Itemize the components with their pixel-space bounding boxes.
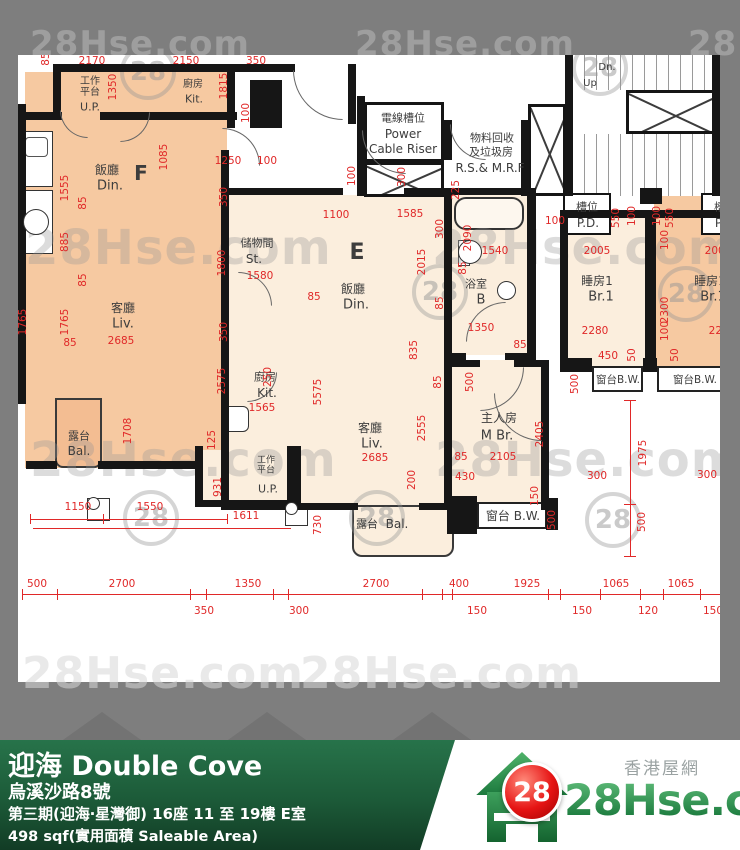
- dimension-label: 1565: [249, 403, 276, 414]
- dimension-label: 350: [194, 606, 214, 617]
- dimension-line: [103, 514, 104, 524]
- dimension-tick: [548, 589, 549, 600]
- dimension-tick: [190, 589, 191, 600]
- watermark-text: 28Hse.com: [300, 648, 582, 699]
- wall: [419, 503, 451, 510]
- dimension-tick: [57, 589, 58, 600]
- wall: [348, 64, 356, 124]
- room-label: 物料回收: [470, 133, 514, 144]
- brand-badge-icon: 28: [502, 762, 562, 822]
- room-label: 露台: [356, 519, 378, 530]
- dimension-label: 2005: [584, 246, 611, 257]
- dimension-label: 1350: [235, 579, 262, 590]
- dimension-label: 1708: [123, 418, 134, 445]
- dimension-label: 885: [60, 232, 71, 252]
- dimension-label: 100: [241, 103, 252, 123]
- room-label: 工作: [80, 77, 100, 87]
- room-label: Cable Riser: [369, 143, 437, 155]
- wall: [250, 80, 282, 128]
- room-label: Power: [385, 128, 421, 140]
- dimension-tick: [442, 589, 443, 600]
- dimension-label: 250: [263, 367, 274, 387]
- room-label: Liv.: [361, 438, 383, 451]
- watermark-badge: 28: [585, 492, 641, 548]
- dimension-tick: [600, 589, 601, 600]
- dimension-line: [30, 514, 31, 524]
- dimension-label: 120: [638, 606, 658, 617]
- room-label: Dn.: [598, 63, 615, 73]
- wall: [357, 96, 365, 196]
- dimension-label: 430: [455, 472, 475, 483]
- wall: [26, 461, 57, 469]
- room-label: Din.: [343, 299, 369, 312]
- watermark-text: 28Hse.com: [435, 432, 720, 488]
- dimension-label: 931: [213, 477, 224, 497]
- dimension-label: 150: [703, 606, 720, 617]
- dimension-label: 300: [697, 470, 717, 481]
- dimension-tick: [422, 589, 423, 600]
- dimension-label: 2015: [417, 249, 428, 276]
- house-door-icon: [506, 824, 537, 842]
- room-label: 及垃圾房: [469, 147, 513, 158]
- dimension-label: 450: [598, 351, 618, 362]
- room-label: 窗台B.W.: [596, 375, 640, 386]
- dimension-label: 730: [313, 515, 324, 535]
- dimension-label: 2685: [362, 453, 389, 464]
- room-label: 電線槽位: [381, 113, 425, 124]
- dimension-label: 85: [433, 375, 444, 388]
- room-label: 窗台B.W.: [673, 375, 717, 386]
- dimension-label: 5575: [313, 379, 324, 406]
- dimension-line: [30, 519, 228, 520]
- dimension-label: 1765: [18, 309, 28, 336]
- footer-white-wedge: 28 香港屋網 28Hse.com: [418, 740, 740, 850]
- dimension-label: 100: [545, 216, 565, 227]
- dimension-label: 300: [397, 167, 408, 187]
- dimension-label: 225: [451, 180, 462, 200]
- wall: [195, 500, 290, 507]
- dimension-tick: [273, 589, 274, 600]
- dimension-label: 400: [449, 579, 469, 590]
- dimension-label: 100: [660, 230, 671, 250]
- room-label: Br.1: [588, 291, 613, 304]
- dimension-line: [624, 400, 636, 401]
- room-label: 飯廳: [95, 164, 119, 176]
- dimension-tick: [700, 589, 701, 600]
- room-label: E: [349, 242, 364, 264]
- fixture-circle: [497, 281, 516, 300]
- wall: [444, 353, 466, 360]
- dimension-line: [624, 504, 636, 505]
- room-label: 儲物間: [241, 238, 274, 249]
- dimension-label: 150: [530, 486, 541, 506]
- stairs-lower: [572, 134, 712, 196]
- room-label: 槽位: [576, 202, 598, 213]
- dimension-label: 100: [627, 206, 638, 226]
- fixture-inner-1: [25, 137, 48, 157]
- dimension-label: 85: [435, 296, 446, 309]
- dimension-tick: [560, 589, 561, 600]
- wall: [98, 461, 198, 469]
- dimension-label: 1800: [217, 250, 228, 277]
- wall: [560, 358, 592, 372]
- dimension-tick: [452, 589, 453, 600]
- dimension-label: 85: [458, 261, 469, 274]
- fixture-circle: [285, 502, 298, 515]
- dimension-label: 50: [627, 348, 638, 361]
- room-label: U.P.: [258, 484, 278, 495]
- room-label: Up: [583, 79, 597, 89]
- dimension-label: 1765: [60, 309, 71, 336]
- room-label: 主人房: [481, 412, 517, 424]
- wall: [560, 210, 568, 370]
- room-label: Liv.: [112, 318, 134, 331]
- dimension-label: 150: [467, 606, 487, 617]
- room-label: P.D.: [577, 217, 599, 229]
- dimension-label: 1100: [323, 210, 350, 221]
- dimension-label: 85: [63, 338, 76, 349]
- dimension-label: 835: [409, 340, 420, 360]
- dimension-label: 1925: [514, 579, 541, 590]
- room-label: Bal.: [68, 445, 91, 457]
- dimension-label: 100: [347, 166, 358, 186]
- dimension-label: 1585: [397, 209, 424, 220]
- dimension-label: 300: [289, 606, 309, 617]
- dimension-label: 85: [307, 292, 320, 303]
- dimension-label: 200: [407, 470, 418, 490]
- dimension-label: 2700: [109, 579, 136, 590]
- wall: [221, 188, 343, 195]
- wall: [645, 212, 656, 372]
- room-label: B: [477, 294, 486, 307]
- floorplan: 28Hse.com28Hse.com28Hse.com28Hse.com2828…: [18, 55, 720, 682]
- room-label: 客廳: [358, 422, 382, 434]
- room-label: 睡房1: [694, 275, 720, 287]
- room-label: R.S.& M.R.F: [455, 162, 524, 174]
- wall: [26, 112, 62, 120]
- dimension-label: 350: [219, 322, 230, 342]
- wall: [18, 104, 26, 404]
- wall: [712, 55, 720, 196]
- dimension-label: 1611: [233, 511, 260, 522]
- dimension-label: 1350: [468, 323, 495, 334]
- wall: [444, 360, 480, 367]
- dimension-label: 350: [219, 187, 230, 207]
- dimension-label: 1065: [668, 579, 695, 590]
- room-label: P.D.: [715, 217, 720, 229]
- room-label: Kit.: [257, 387, 277, 399]
- dimension-line: [624, 556, 636, 557]
- room-label: 睡房1: [581, 275, 613, 287]
- dimension-label: 1085: [159, 144, 170, 171]
- room-label: 平台: [257, 467, 275, 476]
- dimension-label: 2090: [463, 225, 474, 252]
- room-label: 廚房: [183, 80, 203, 90]
- room-label: Kit.: [185, 94, 203, 105]
- room-label: 露台: [68, 431, 90, 442]
- dimension-tick: [206, 589, 207, 600]
- wall: [514, 360, 549, 367]
- wall: [447, 496, 477, 534]
- dimension-label: 500: [465, 372, 476, 392]
- dimension-label: 2575: [217, 368, 228, 395]
- dimension-label: 300: [587, 471, 607, 482]
- dimension-line: [33, 528, 291, 529]
- dimension-label: 85: [454, 452, 467, 463]
- room-label: 浴室: [465, 279, 487, 290]
- wall: [444, 360, 452, 510]
- dimension-label: 550: [611, 208, 622, 228]
- dimension-label: 500: [637, 512, 648, 532]
- dimension-label: 2700: [363, 579, 390, 590]
- wall: [287, 446, 301, 506]
- dimension-tick: [663, 589, 664, 600]
- property-area: 498 sqf(實用面積 Saleable Area): [8, 825, 258, 846]
- dimension-label: 1555: [60, 175, 71, 202]
- door-arc: [293, 70, 343, 120]
- fixture-circle: [23, 209, 49, 235]
- dimension-label: 85: [513, 340, 526, 351]
- watermark-text: 28Hse.com: [30, 24, 250, 64]
- watermark-text: 28Hse.com: [22, 648, 304, 699]
- dimension-label: 150: [572, 606, 592, 617]
- dimension-label: 500: [27, 579, 47, 590]
- dimension-line: [227, 514, 228, 524]
- dimension-label: 85: [78, 273, 89, 286]
- dimension-label: 500: [547, 510, 558, 530]
- room-label: 飯廳: [341, 283, 365, 295]
- lift-hatch-box: [626, 90, 720, 134]
- dimension-label: 2685: [108, 336, 135, 347]
- watermark-text: 28Hse.com: [355, 24, 575, 64]
- dimension-label: 1815: [219, 73, 230, 100]
- room-label: M Br.: [481, 430, 514, 443]
- room-label: St.: [246, 253, 262, 265]
- footer-bar: 迎海 Double Cove 烏溪沙路8號 第三期(迎海‧星灣御) 16座 11…: [0, 740, 740, 850]
- room-label: 平台: [80, 88, 100, 98]
- dimension-label: 2280: [582, 326, 609, 337]
- dimension-label: 125: [207, 430, 218, 450]
- room-label: Bal.: [386, 518, 409, 530]
- wall: [643, 358, 657, 372]
- dimension-tick: [22, 589, 23, 600]
- dimension-line: [630, 400, 631, 557]
- dimension-label: 85: [78, 196, 89, 209]
- room-label: Br.1: [700, 291, 720, 304]
- wall: [521, 120, 529, 196]
- dimension-label: 2405: [535, 421, 546, 448]
- dimension-label: 1580: [247, 271, 274, 282]
- watermark-text: 28Hse.com: [688, 24, 740, 64]
- wall: [565, 55, 573, 196]
- room-label: 客廳: [111, 302, 135, 314]
- room-label: Din.: [97, 180, 123, 193]
- wall: [527, 188, 536, 360]
- wall: [640, 188, 662, 204]
- dimension-label: 2005: [705, 246, 720, 257]
- dimension-label: 2280: [709, 326, 720, 337]
- dimension-tick: [288, 589, 289, 600]
- room-label: U.P.: [80, 102, 100, 113]
- wall: [53, 64, 61, 116]
- wall: [221, 188, 229, 510]
- property-phase: 第三期(迎海‧星灣御) 16座 11 至 19樓 E室: [8, 803, 306, 824]
- dimension-label: 1250: [215, 156, 242, 167]
- dimension-label: 1975: [638, 440, 649, 467]
- dimension-label: 500: [570, 374, 581, 394]
- watermark-text: 28Hse.com: [25, 220, 332, 276]
- dimension-label: 100: [652, 206, 663, 226]
- dimension-label: 50: [670, 348, 681, 361]
- dimension-line: [22, 594, 720, 595]
- dimension-label: 1065: [603, 579, 630, 590]
- room-label: 窗台 B.W.: [486, 510, 540, 522]
- dimension-label: 1150: [65, 502, 92, 513]
- dimension-label: 100: [257, 156, 277, 167]
- dimension-tick: [640, 589, 641, 600]
- dimension-label: 300: [435, 219, 446, 239]
- dimension-label: 1350: [108, 74, 119, 101]
- property-address: 烏溪沙路8號: [8, 778, 111, 804]
- dimension-label: 100: [660, 321, 671, 341]
- room-label: 工作: [257, 457, 275, 466]
- dimension-label: 2555: [417, 415, 428, 442]
- dimension-label: 550: [665, 208, 676, 228]
- dimension-label: 2105: [490, 452, 517, 463]
- room-label: F: [134, 163, 148, 183]
- room-label: 槽位: [714, 202, 720, 213]
- brand-name: 28Hse.com: [564, 776, 740, 826]
- wall: [195, 446, 203, 506]
- watermark-badge: 28: [123, 490, 179, 546]
- dimension-label: 2300: [660, 297, 671, 324]
- dimension-label: 1540: [482, 246, 509, 257]
- dimension-label: 1550: [137, 502, 164, 513]
- screenshot-root: { "colors":{"bg_gray":"#7e7e7e","plan_wh…: [0, 0, 740, 850]
- vert-hatch-box: [528, 104, 566, 196]
